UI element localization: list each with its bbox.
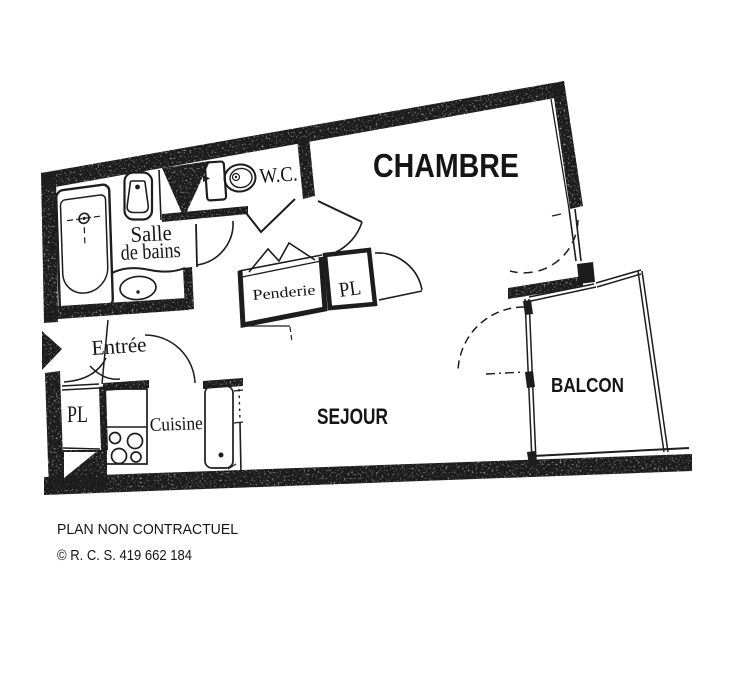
svg-text:BALCON: BALCON [551, 374, 624, 397]
svg-text:de bains: de bains [120, 237, 181, 265]
svg-text:CHAMBRE: CHAMBRE [373, 147, 519, 184]
svg-text:PLAN NON CONTRACTUEL: PLAN NON CONTRACTUEL [57, 521, 238, 538]
svg-text:Cuisine: Cuisine [149, 413, 203, 436]
svg-text:© R. C. S. 419 662 184: © R. C. S. 419 662 184 [57, 547, 192, 564]
svg-text:Penderie: Penderie [252, 283, 317, 304]
svg-text:PL: PL [67, 402, 88, 427]
svg-text:PL: PL [337, 275, 362, 302]
svg-text:W.C.: W.C. [259, 161, 299, 188]
svg-text:SEJOUR: SEJOUR [317, 404, 388, 429]
svg-text:Entrée: Entrée [91, 332, 148, 360]
